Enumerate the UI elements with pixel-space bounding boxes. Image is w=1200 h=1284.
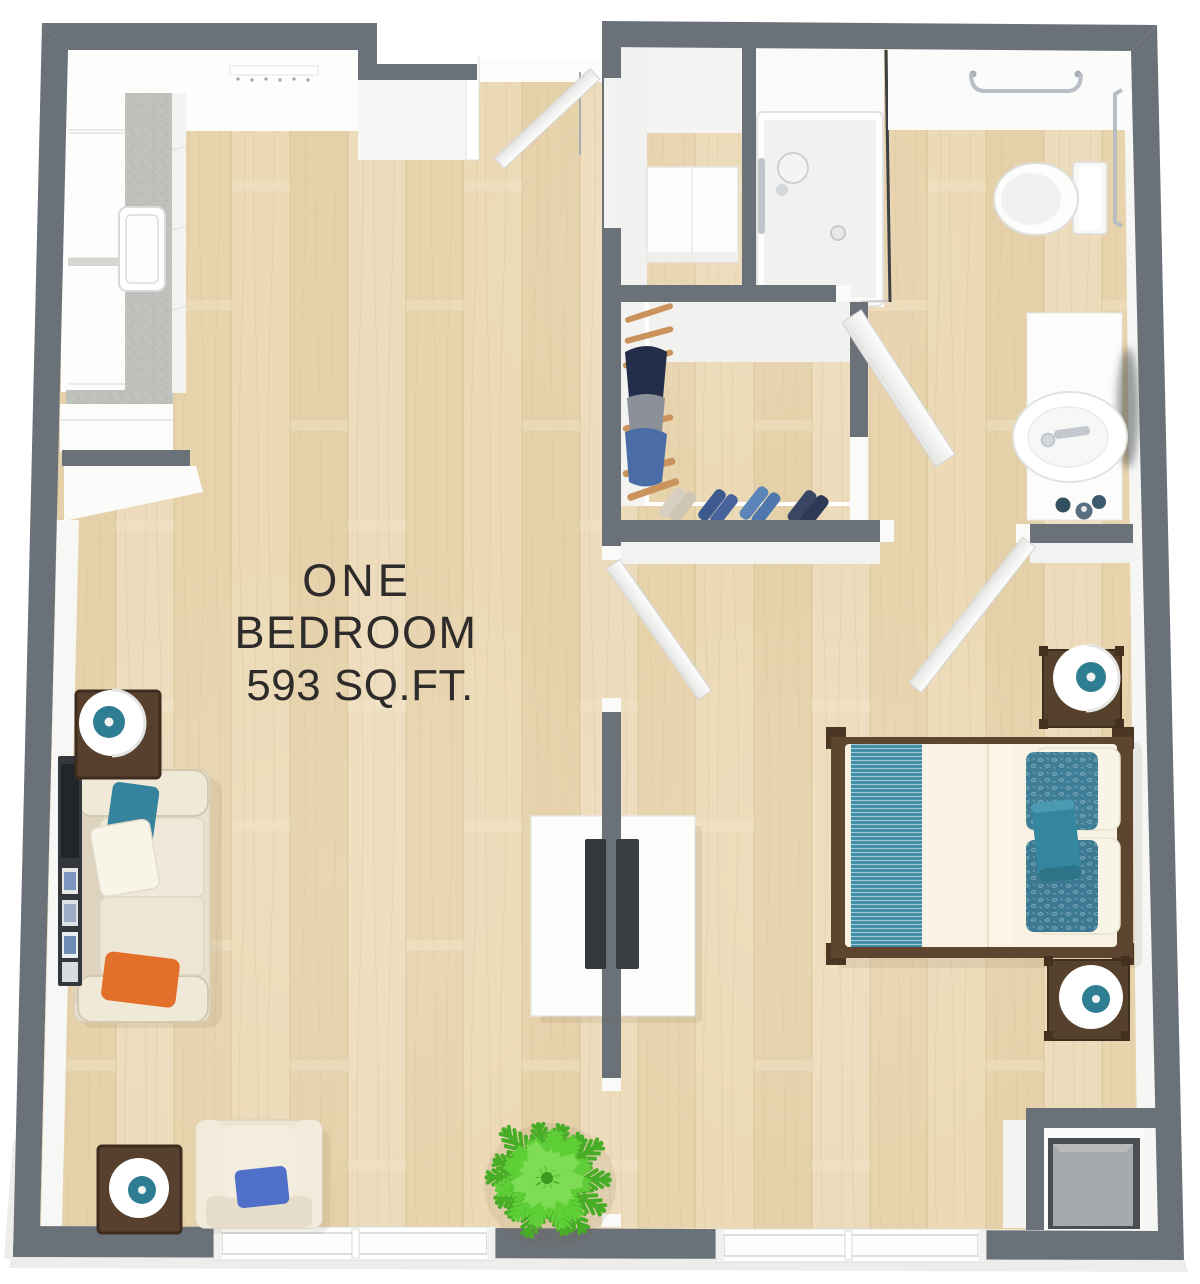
svg-text:ONE: ONE xyxy=(302,555,412,606)
svg-text:BEDROOM: BEDROOM xyxy=(234,607,477,658)
svg-text:593 SQ.FT.: 593 SQ.FT. xyxy=(246,661,474,710)
